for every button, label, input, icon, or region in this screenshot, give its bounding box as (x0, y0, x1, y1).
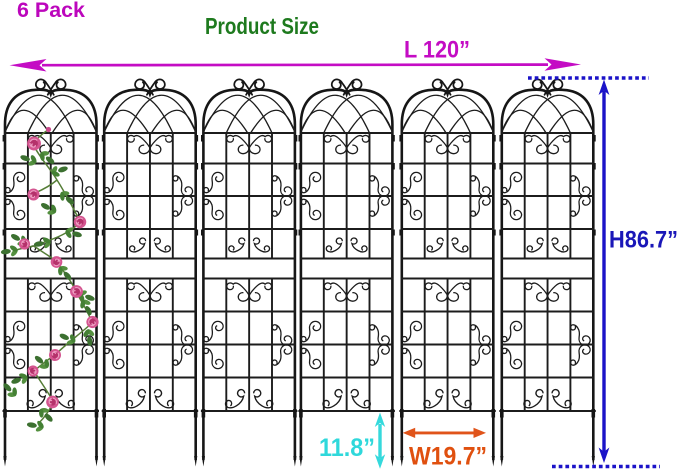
svg-text:W19.7”: W19.7” (409, 443, 487, 471)
svg-text:11.8”: 11.8” (319, 434, 375, 462)
svg-text:H86.7”: H86.7” (609, 227, 678, 254)
svg-text:Product Size: Product Size (205, 13, 319, 39)
svg-text:6 Pack: 6 Pack (17, 0, 85, 22)
svg-text:L 120”: L 120” (404, 37, 470, 64)
